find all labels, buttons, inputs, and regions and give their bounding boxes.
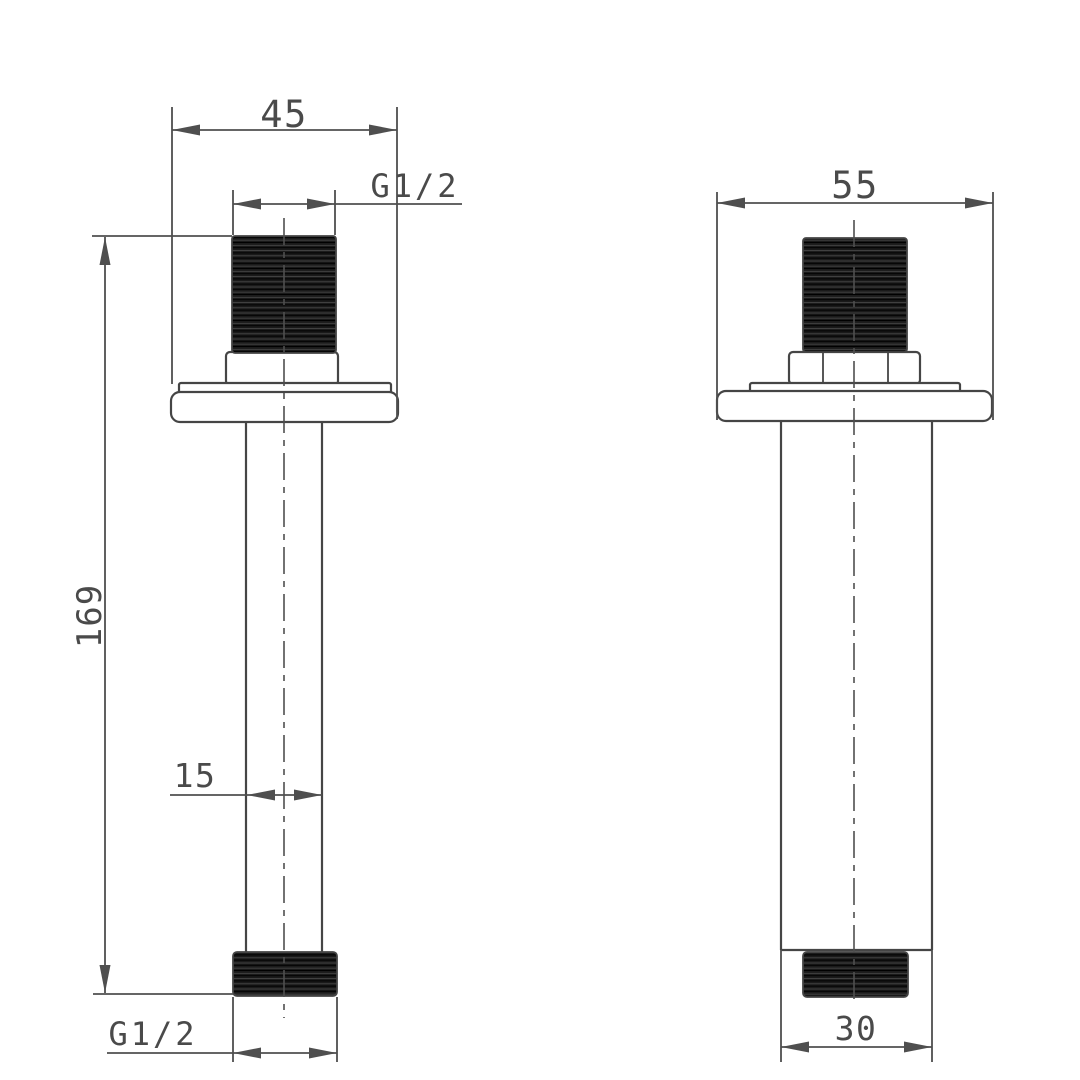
dim-label: 15 [174,756,217,795]
dim-label: 45 [260,93,308,136]
arrowhead-left [781,1042,809,1053]
arrowhead-left [233,199,261,210]
arrowhead-right [307,199,335,210]
hex-nut [226,352,338,385]
drawing-canvas: 45 G1/2 169 15 [0,0,1080,1080]
right-view: 55 30 [717,164,993,1062]
dim-left-bottom-thread: G1/2 [107,997,337,1062]
arrowhead-up [100,237,111,265]
right-view-part [717,220,992,1005]
arrowhead-left [172,125,200,136]
dim-label: 55 [831,164,879,207]
dim-label: 169 [70,584,110,648]
thread-label: G1/2 [370,167,459,205]
thread-label: G1/2 [108,1015,197,1053]
arrowhead-down [100,965,111,993]
arrowhead-right [309,1048,337,1059]
dim-label: 30 [835,1009,878,1048]
arrowhead-left [233,1048,261,1059]
arrowhead-left [247,790,275,801]
arrowhead-right [369,125,397,136]
arrowhead-left [717,198,745,209]
arrowhead-right [904,1042,932,1053]
left-view: 45 G1/2 169 15 [70,93,462,1062]
dim-left-overall-height: 169 [70,236,233,994]
left-view-part [171,218,398,1018]
dim-left-top-thread: G1/2 [233,167,462,235]
arrowhead-right [965,198,993,209]
bottom-thread [233,952,337,996]
top-thread [803,238,907,352]
bottom-thread [803,952,908,997]
arrowhead-right [294,790,322,801]
